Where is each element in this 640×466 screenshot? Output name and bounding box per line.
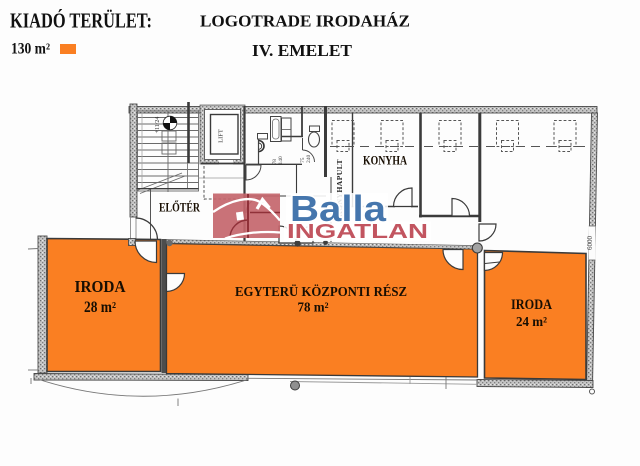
svg-text:KONYHA: KONYHA [363,153,407,168]
svg-text:ELŐTÉR: ELŐTÉR [159,200,200,215]
svg-text:6000: 6000 [586,236,594,251]
svg-text:EGYTERÜ KÖZPONTI RÉSZ: EGYTERÜ KÖZPONTI RÉSZ [235,284,407,299]
svg-text:IRODA: IRODA [511,297,552,313]
svg-text:LOGOTRADE IRODAHÁZ: LOGOTRADE IRODAHÁZ [200,12,410,31]
svg-text:240: 240 [306,155,312,164]
svg-text:78 m²: 78 m² [298,300,329,315]
svg-text:28 m²: 28 m² [84,299,116,316]
svg-text:LIFT: LIFT [218,129,225,143]
svg-text:130 m²: 130 m² [11,41,50,58]
svg-text:KIADÓ TERÜLET:: KIADÓ TERÜLET: [10,9,152,33]
svg-text:24 m²: 24 m² [516,314,547,329]
svg-text:INGATLAN: INGATLAN [287,221,428,243]
svg-text:140: 140 [278,156,284,165]
svg-text:+11/24: +11/24 [155,117,161,134]
svg-text:IV. EMELET: IV. EMELET [252,41,353,60]
svg-text:IRODA: IRODA [75,277,127,296]
